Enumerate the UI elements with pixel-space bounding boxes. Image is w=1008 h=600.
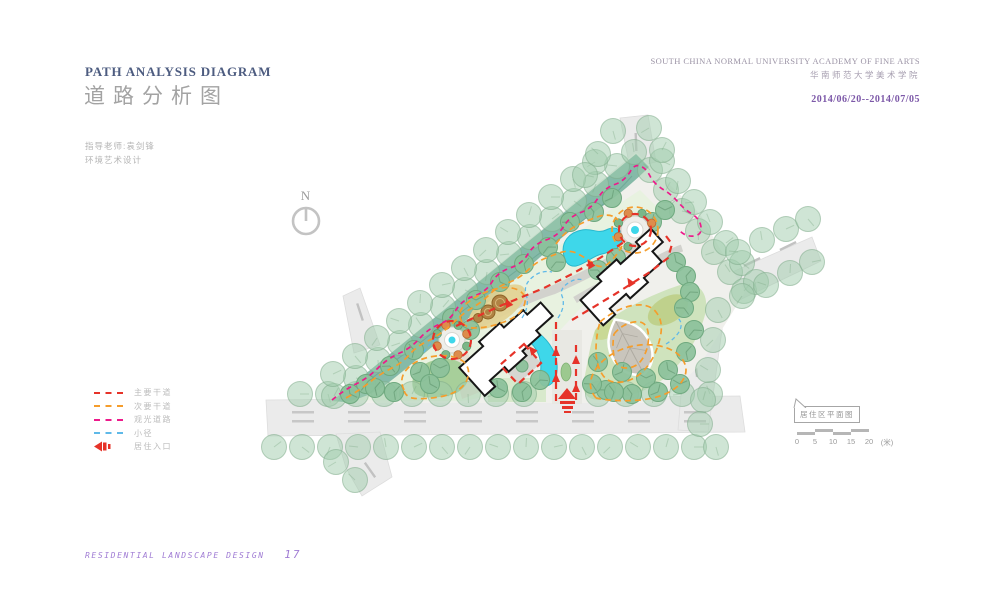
legend-label: 次要干道 bbox=[134, 401, 172, 412]
tick: 10 bbox=[829, 437, 837, 446]
small-path-dash-icon bbox=[94, 432, 123, 434]
footer: RESIDENTIAL LANDSCAPE DESIGN 17 bbox=[85, 543, 302, 562]
callout-tail bbox=[793, 398, 807, 408]
plaza-west bbox=[439, 327, 465, 353]
date-range: 2014/06/20--2014/07/05 bbox=[650, 94, 920, 105]
school-name-en: SOUTH CHINA NORMAL UNIVERSITY ACADEMY OF… bbox=[650, 56, 920, 66]
sightseeing-road-dash-icon bbox=[94, 419, 123, 421]
scale-bar-segments bbox=[797, 429, 869, 435]
legend-item-small-path: 小径 bbox=[94, 427, 172, 440]
legend-label: 主要干道 bbox=[134, 387, 172, 398]
entrance-arrow-icon bbox=[94, 441, 123, 452]
scale-bar-ticks: 0 5 10 15 20 (米) bbox=[797, 437, 907, 447]
callout-label: 居住区平面图 bbox=[794, 406, 860, 423]
scale-bar: 0 5 10 15 20 (米) bbox=[797, 429, 907, 447]
legend-label: 居住入口 bbox=[134, 441, 172, 452]
north-label: N bbox=[284, 188, 328, 204]
secondary-road-dash-icon bbox=[94, 405, 123, 407]
legend-item-secondary-road: 次要干道 bbox=[94, 400, 172, 413]
main-road-dash-icon bbox=[94, 392, 123, 394]
tick: 0 bbox=[795, 437, 799, 446]
school-name-zh: 华南师范大学美术学院 bbox=[650, 69, 920, 81]
page-title-en: PATH ANALYSIS DIAGRAM bbox=[85, 64, 271, 80]
legend-item-sightseeing-road: 观光道路 bbox=[94, 413, 172, 426]
north-icon bbox=[284, 204, 328, 238]
tick: 15 bbox=[847, 437, 855, 446]
north-indicator: N bbox=[284, 188, 328, 243]
page-number: 17 bbox=[284, 548, 301, 561]
legend-item-entrance: 居住入口 bbox=[94, 440, 172, 453]
presentation-board: { "header": { "title_en": "PATH ANALYSIS… bbox=[0, 0, 1008, 600]
legend-label: 小径 bbox=[134, 428, 153, 439]
legend-label: 观光道路 bbox=[134, 414, 172, 425]
legend-item-main-road: 主要干道 bbox=[94, 386, 172, 399]
school-block: SOUTH CHINA NORMAL UNIVERSITY ACADEMY OF… bbox=[650, 56, 920, 105]
instructor-line: 指导老师:袁剑锋 bbox=[85, 139, 155, 153]
scale-unit: (米) bbox=[881, 437, 894, 448]
project-info: 指导老师:袁剑锋 环境艺术设计 bbox=[85, 139, 155, 167]
major-line: 环境艺术设计 bbox=[85, 153, 155, 167]
legend: 主要干道 次要干道 观光道路 小径 居住入口 bbox=[94, 386, 172, 454]
tick: 5 bbox=[813, 437, 817, 446]
plan-callout: 居住区平面图 bbox=[794, 406, 860, 423]
page-title-zh: 道路分析图 bbox=[84, 80, 229, 110]
footer-series-title: RESIDENTIAL LANDSCAPE DESIGN bbox=[85, 551, 265, 560]
tick: 20 bbox=[865, 437, 873, 446]
